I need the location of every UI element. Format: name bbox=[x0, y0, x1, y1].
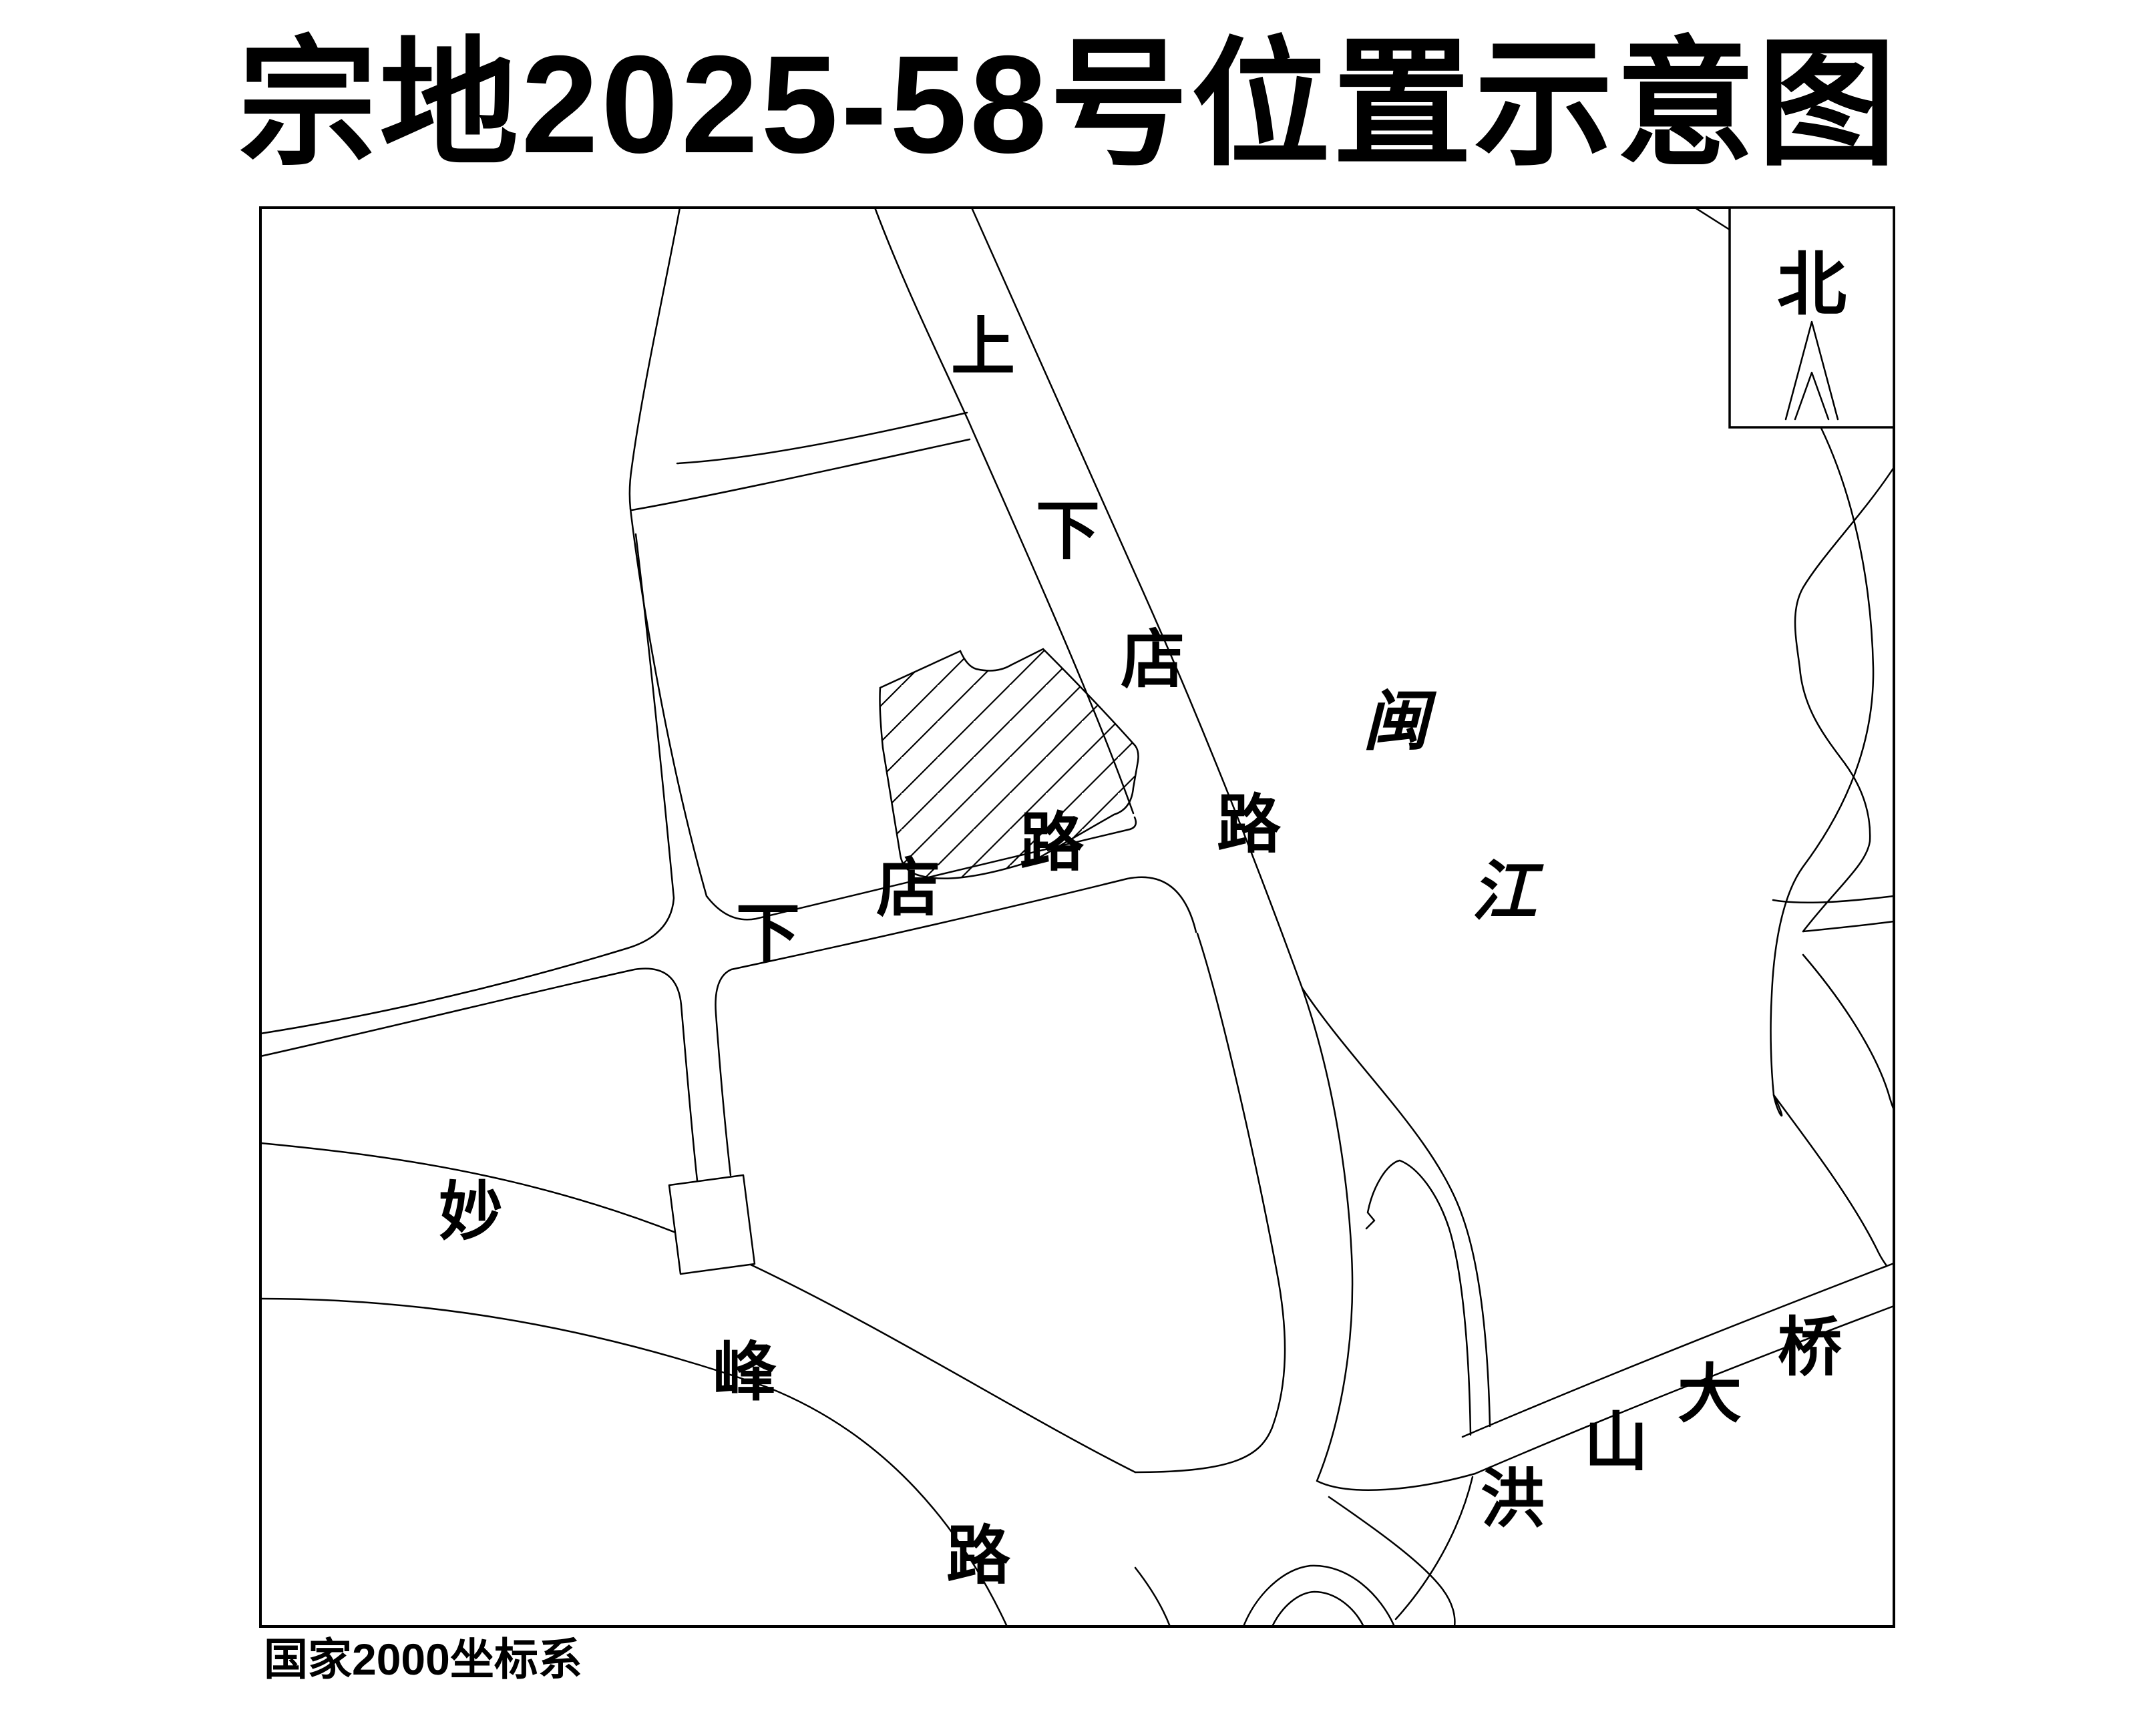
label-miaofeng-3: 路 bbox=[946, 1520, 1011, 1592]
north-box: 北 bbox=[1730, 208, 1894, 427]
creek-branch-south-east-line bbox=[1803, 955, 1894, 1110]
creek-branch-east-lower bbox=[1803, 921, 1894, 931]
block-north-road-line bbox=[630, 208, 680, 509]
label-minjiang-1: 闽 bbox=[1363, 683, 1437, 760]
lane-west-lower-edge bbox=[260, 969, 697, 1180]
creek-east-west-line bbox=[1771, 428, 1874, 1095]
creek-west-hump bbox=[1366, 1160, 1471, 1435]
lane-south-east-edge bbox=[715, 969, 731, 1175]
map-frame bbox=[260, 208, 1894, 1626]
road-miaofeng-south-edge bbox=[260, 1299, 1007, 1626]
map-linework bbox=[260, 208, 1894, 1626]
north-label: 北 bbox=[1777, 246, 1847, 324]
creek-branch-south-west-line bbox=[1774, 1095, 1887, 1267]
road-shangxiadian-west-edge-lower bbox=[1135, 933, 1285, 1472]
label-miaofeng-1: 妙 bbox=[439, 1176, 503, 1248]
road-segment-behind-north-box bbox=[1695, 208, 1730, 230]
label-xiadian-1: 下 bbox=[736, 898, 800, 969]
parcel-location-map-page: 宗地2025-58号位置示意图 bbox=[0, 0, 2137, 1736]
label-minjiang-2: 江 bbox=[1471, 853, 1544, 930]
lane-west-upper-edge bbox=[260, 534, 674, 1034]
road-xiadian-south-edge bbox=[731, 877, 1196, 969]
road-interchange-north-edge bbox=[1302, 988, 1475, 1490]
label-hongshan-2: 山 bbox=[1584, 1407, 1648, 1478]
ramp-to-bridge-edge bbox=[1396, 1477, 1473, 1619]
label-xiadian-3: 路 bbox=[1020, 807, 1085, 879]
label-hongshan-3: 大 bbox=[1678, 1359, 1742, 1430]
ramp-west-edge bbox=[1135, 1568, 1170, 1626]
ramp-loop-inner bbox=[1272, 1592, 1364, 1626]
ramp-loop-outer bbox=[1243, 1566, 1394, 1626]
map-labels: 上 下 店 路 下 店 路 妙 峰 路 洪 山 大 桥 闽 江 bbox=[439, 312, 1842, 1592]
label-shangxiadian-3: 店 bbox=[1121, 624, 1185, 696]
label-miaofeng-2: 峰 bbox=[713, 1337, 777, 1408]
label-shangxiadian-2: 下 bbox=[1036, 495, 1100, 567]
label-shangxiadian-4: 路 bbox=[1217, 789, 1282, 861]
culvert-bridge-rect bbox=[669, 1175, 755, 1274]
parcel-2025-58-hatched-area bbox=[880, 649, 1139, 879]
label-shangxiadian-1: 上 bbox=[951, 312, 1015, 383]
ramp-southeast-edge bbox=[1329, 1497, 1454, 1626]
label-hongshan-4: 桥 bbox=[1778, 1312, 1842, 1383]
creek-east-east-line bbox=[1795, 467, 1894, 931]
block-north-edge bbox=[632, 439, 970, 510]
lane-north-edge bbox=[677, 413, 967, 463]
datum-note: 国家2000坐标系 bbox=[264, 1635, 582, 1684]
page-title: 宗地2025-58号位置示意图 bbox=[238, 27, 1899, 182]
label-hongshan-1: 洪 bbox=[1481, 1464, 1545, 1535]
label-xiadian-2: 店 bbox=[876, 853, 940, 924]
